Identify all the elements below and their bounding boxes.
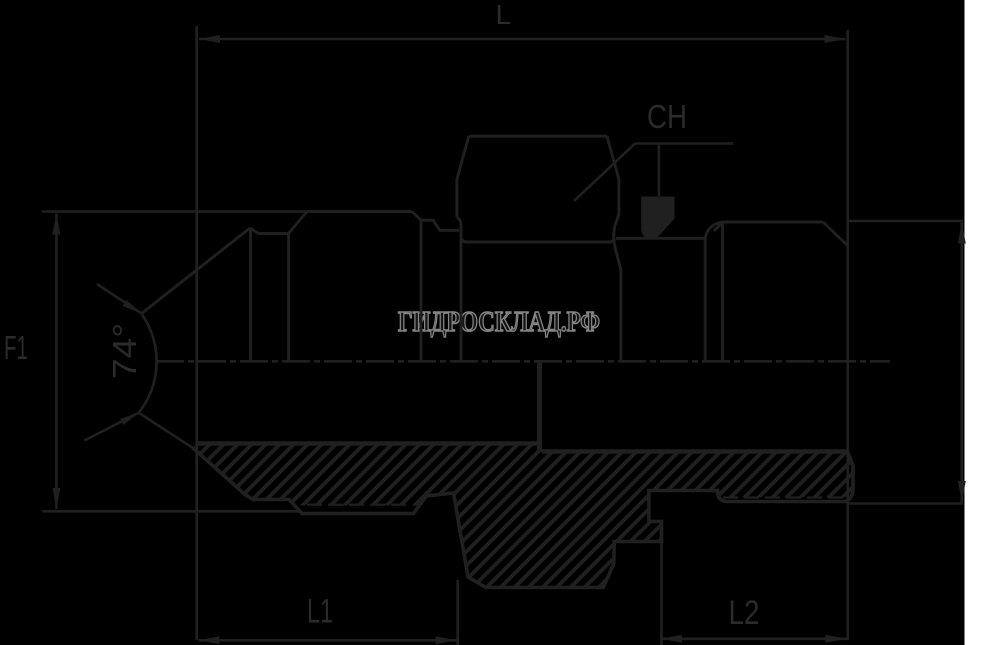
svg-text:74°: 74° [106, 323, 143, 379]
svg-text:L1: L1 [307, 593, 333, 631]
svg-text:L: L [496, 0, 512, 30]
svg-text:F1: F1 [4, 329, 28, 366]
svg-text:CH: CH [647, 98, 687, 135]
svg-text:L2: L2 [729, 594, 760, 632]
svg-text:ГИДРОСКЛАД.РФ: ГИДРОСКЛАД.РФ [398, 307, 600, 338]
